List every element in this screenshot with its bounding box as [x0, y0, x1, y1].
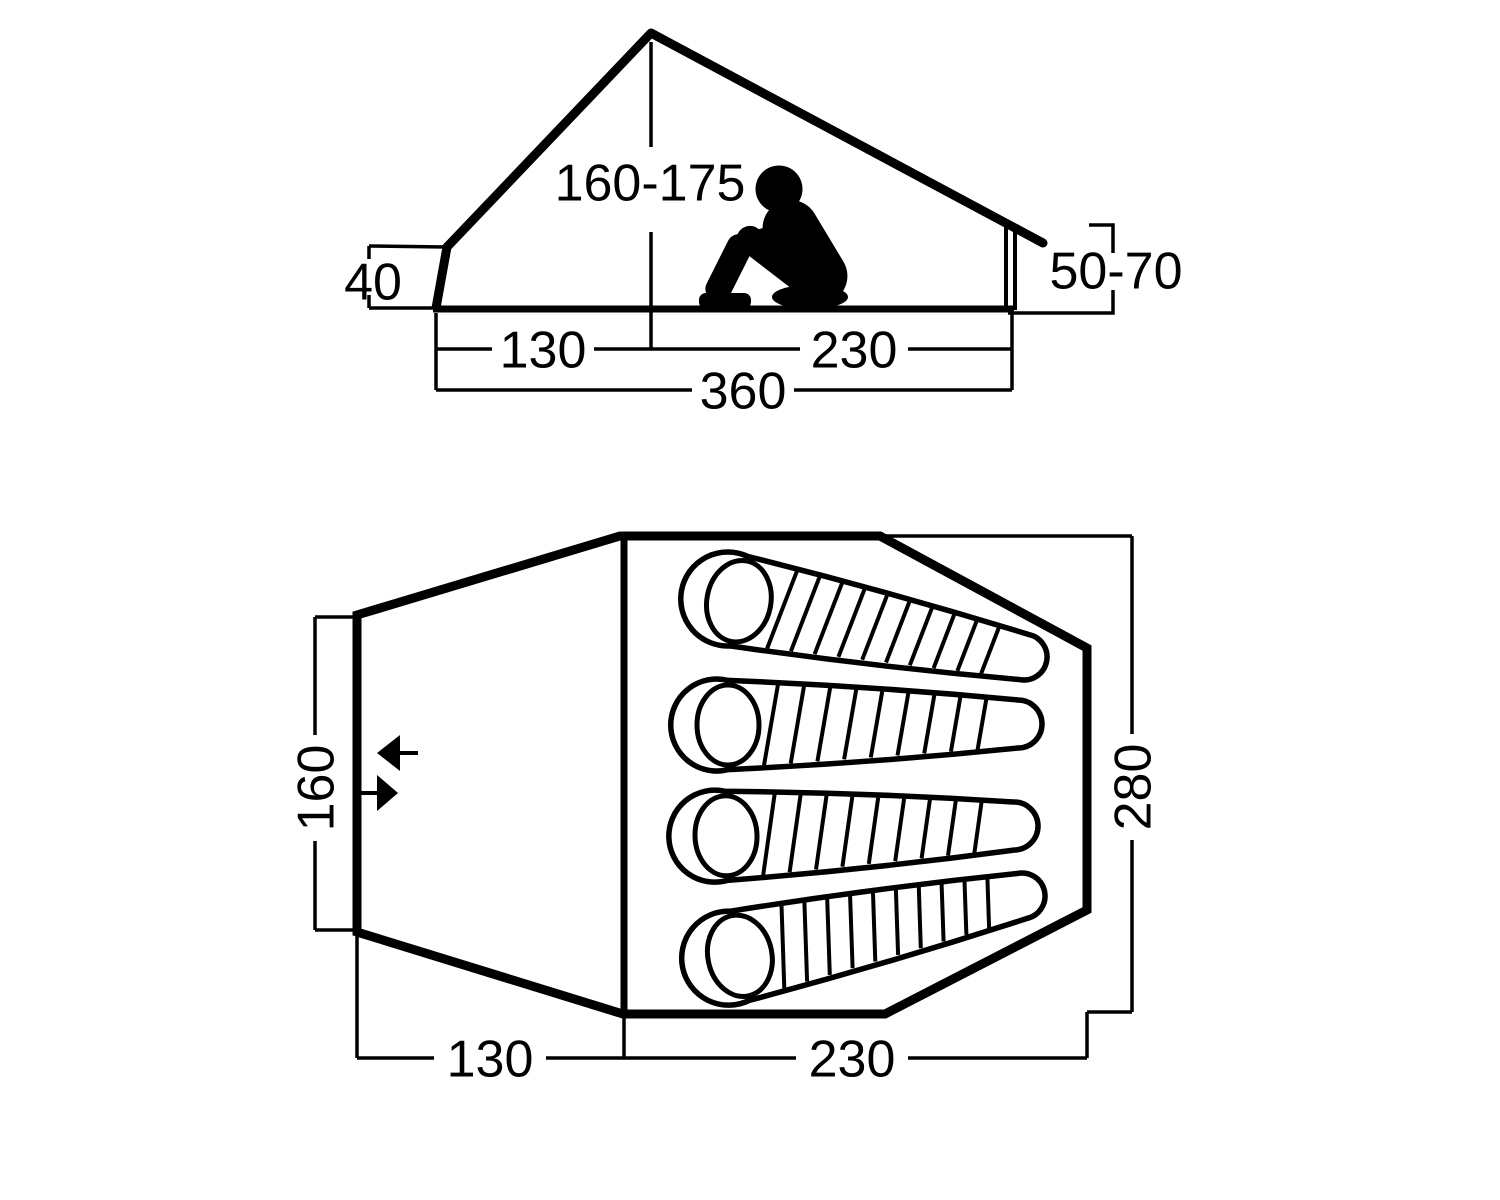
sleeping-area-width-label: 280 — [1105, 744, 1163, 831]
entrance-arrow-left-icon — [377, 735, 400, 771]
sleeping-bag-baffle-line — [987, 878, 989, 928]
sleeping-bag-baffle-line — [896, 890, 898, 955]
sleeping-area-length-label: 230 — [809, 1031, 896, 1089]
sleeping-bag-baffle-line — [782, 905, 785, 988]
rear-height-label: 40 — [344, 254, 402, 312]
floor-plan-diagram: 160 280 130 230 — [288, 536, 1163, 1089]
sleeping-bag-4 — [682, 873, 1045, 1005]
entrance-arrows-icon — [358, 735, 418, 811]
entrance-arrow-right-icon — [377, 775, 398, 811]
sleeping-bags-group — [669, 552, 1047, 1005]
tent-dimension-diagram: 160-175 40 50-70 130 230 — [0, 0, 1500, 1200]
rear-height-top-line — [369, 246, 446, 247]
rear-length-label: 130 — [500, 322, 587, 380]
sleeping-bag-hood-opening — [694, 795, 759, 877]
sleeping-bag-baffle-line — [827, 899, 830, 975]
sleeping-bag-baffle-line — [942, 884, 944, 941]
sleeping-bag-baffle-line — [919, 887, 921, 948]
peak-height-label: 160-175 — [555, 155, 746, 213]
sleeping-bag-baffle-line — [965, 881, 967, 935]
rear-width-label: 160 — [288, 745, 346, 832]
sleeping-bag-baffle-line — [850, 896, 853, 968]
sleeping-bag-1 — [681, 552, 1047, 680]
main-length-label: 230 — [811, 322, 898, 380]
front-wall-height-label: 50-70 — [1050, 243, 1183, 301]
sleeping-bag-baffle-line — [804, 902, 807, 982]
sleeping-bag-2 — [671, 679, 1042, 771]
sleeping-bag-3 — [669, 790, 1038, 882]
vestibule-length-label: 130 — [447, 1031, 534, 1089]
person-shoe-shape — [699, 293, 751, 309]
total-length-label: 360 — [700, 363, 787, 421]
side-view-diagram: 160-175 40 50-70 130 230 — [344, 33, 1182, 421]
sleeping-bag-hood-opening — [697, 685, 759, 765]
sleeping-bag-baffle-line — [873, 893, 875, 961]
